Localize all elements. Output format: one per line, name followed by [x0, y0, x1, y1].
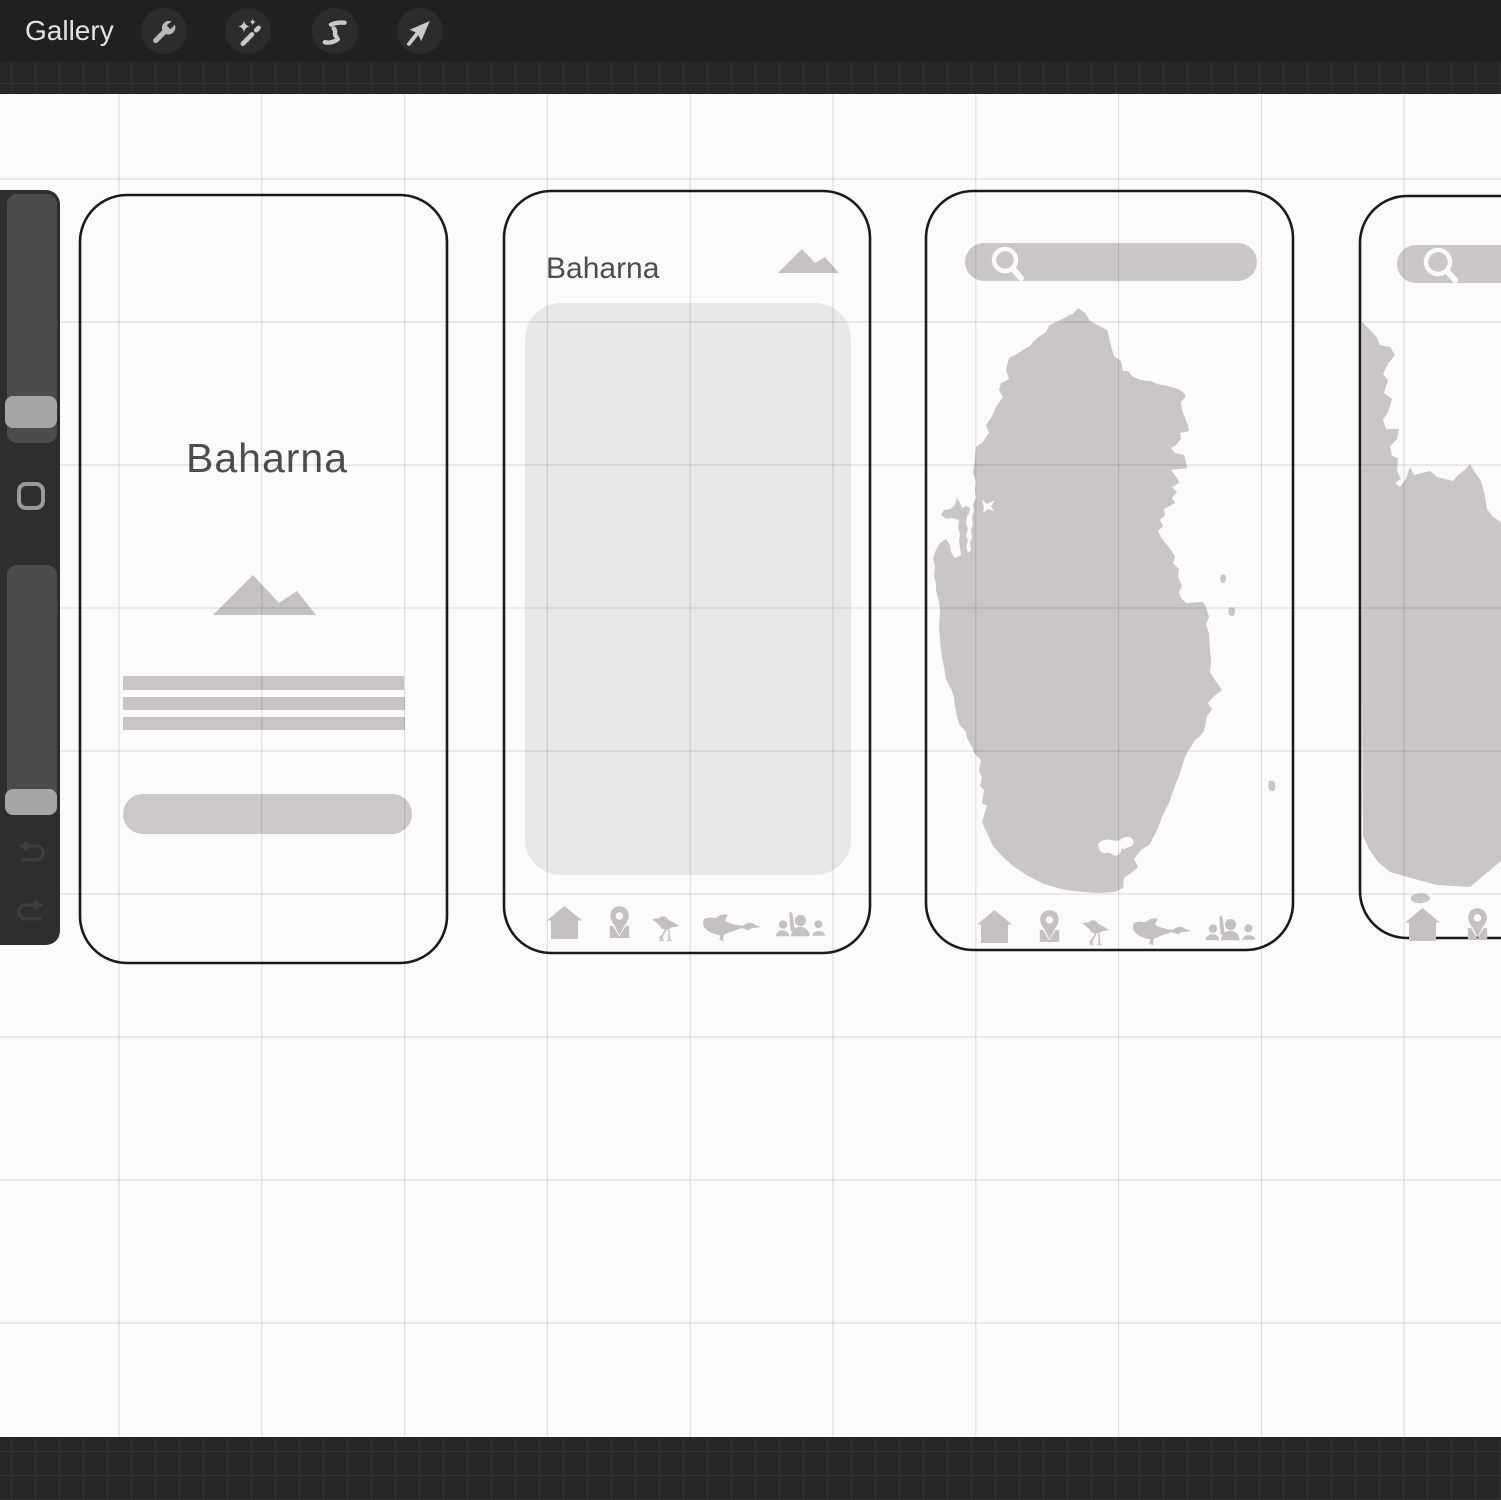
- svg-text:Baharna: Baharna: [186, 435, 348, 481]
- svg-text:Baharna: Baharna: [546, 252, 660, 285]
